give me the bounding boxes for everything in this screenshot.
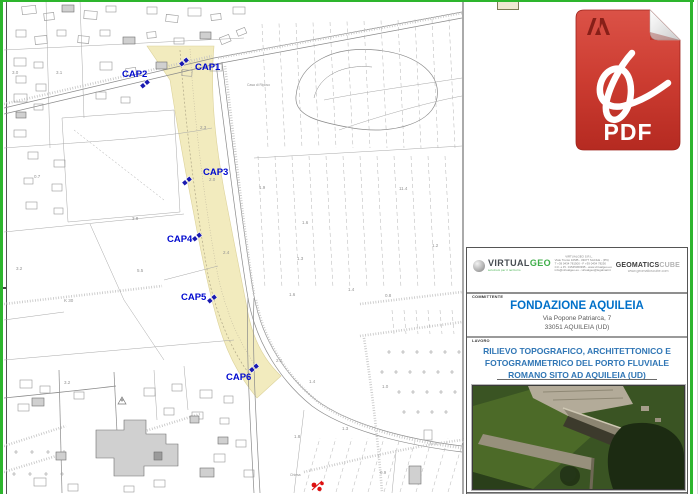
- tree-symbols: [12, 350, 461, 476]
- title-block: VIRTUALGEO soluzioni per il territorio V…: [466, 247, 688, 494]
- virtualgeo-name-prefix: VIRTUAL: [488, 258, 530, 268]
- map-label: 1.2: [432, 243, 439, 248]
- lavoro-label: LAVORO: [472, 339, 490, 344]
- site-photo: [472, 385, 685, 490]
- map-label: 1.4: [309, 379, 316, 384]
- map-label: 3.2: [64, 380, 71, 385]
- church-symbol: [118, 397, 126, 404]
- map-label: 1.6: [302, 220, 309, 225]
- company-info: VIRTUALGEO S.R.L. Viale Trento 105/B - 3…: [555, 255, 604, 272]
- map-label: 3.8: [132, 216, 139, 221]
- work-title-line2: FOTOGRAMMETRICO DEL PORTO FLUVIALE: [467, 358, 687, 368]
- selection-frame-left: [0, 0, 3, 494]
- virtualgeo-logo: VIRTUALGEO soluzioni per il territorio: [473, 259, 551, 273]
- map-label: 1.9: [259, 185, 266, 190]
- map-label: 1.4: [348, 287, 355, 292]
- map-label: K 30: [64, 298, 74, 303]
- cadastral-map: 3.03.12.30.72.01.93.81.61.22.41.33.25.51…: [4, 0, 464, 494]
- map-label: 11.4: [399, 186, 408, 191]
- virtualgeo-sphere-icon: [473, 260, 485, 272]
- map-label: 1.6: [289, 292, 296, 297]
- cap-label: CAP5: [181, 292, 207, 303]
- geomatics-url: www.geomaticscube.com: [622, 269, 673, 273]
- map-label: 2.4: [223, 250, 230, 255]
- divider: [497, 379, 657, 380]
- virtualgeo-name-suffix: GEO: [530, 258, 551, 268]
- selection-frame-right: [690, 0, 693, 494]
- divider: [467, 292, 687, 294]
- divider: [467, 336, 687, 338]
- map-label: 1.8: [294, 434, 301, 439]
- committente-label: COMMITTENTE: [472, 295, 503, 300]
- client-address-line1: Via Popone Patriarca, 7: [467, 315, 687, 322]
- map-label: 1.3: [297, 256, 304, 261]
- cap-label: CAP6: [226, 372, 251, 383]
- map-label: 0.9: [380, 470, 387, 475]
- cap-label: CAP1: [195, 62, 221, 73]
- geomatics-name-prefix: GEOMATICS: [616, 262, 660, 269]
- client-address-line2: 33051 AQUILEIA (UD): [467, 324, 687, 331]
- geomatics-cube-logo: GEOMATICSCUBE www.geomaticscube.com: [616, 262, 680, 274]
- work-title-line1: RILIEVO TOPOGRAFICO, ARCHITETTONICO E: [467, 346, 687, 356]
- document-preview-page: 3.03.12.30.72.01.93.81.61.22.41.33.25.51…: [0, 0, 700, 494]
- geomatics-name-suffix: CUBE: [659, 262, 680, 269]
- selection-frame-top: [0, 0, 694, 2]
- red-survey-symbol: [312, 481, 324, 491]
- map-label: 5.5: [137, 268, 144, 273]
- cap-label: CAP2: [122, 69, 147, 80]
- map-label: 1.0: [382, 384, 389, 389]
- map-label: Casa di Riposo: [247, 83, 270, 87]
- map-label: 2.1: [276, 358, 283, 363]
- virtualgeo-name: VIRTUALGEO: [488, 259, 551, 268]
- map-label: Chiesa: [290, 473, 301, 477]
- pdf-file-icon[interactable]: PDF: [575, 9, 681, 151]
- page-edge-line: [697, 0, 698, 494]
- map-label: 1.3: [342, 426, 349, 431]
- map-label: 0.7: [34, 174, 41, 179]
- map-label: 0.8: [385, 293, 392, 298]
- company-info-line: info@virtualgeo.eu - virtualgeo@legalmai…: [555, 269, 604, 272]
- pdf-label: PDF: [604, 119, 653, 145]
- cap-label: CAP4: [167, 234, 193, 245]
- field-drain-lines: [258, 19, 464, 493]
- virtualgeo-tagline: soluzioni per il territorio: [488, 268, 532, 272]
- cap-label: CAP3: [203, 167, 228, 178]
- map-label: 2.3: [200, 125, 207, 130]
- map-label: 3.2: [16, 266, 23, 271]
- map-label: 3.0: [12, 70, 19, 75]
- map-label: 3.1: [56, 70, 63, 75]
- client-name: FONDAZIONE AQUILEIA: [467, 300, 687, 312]
- highlight-corridor: [147, 46, 281, 398]
